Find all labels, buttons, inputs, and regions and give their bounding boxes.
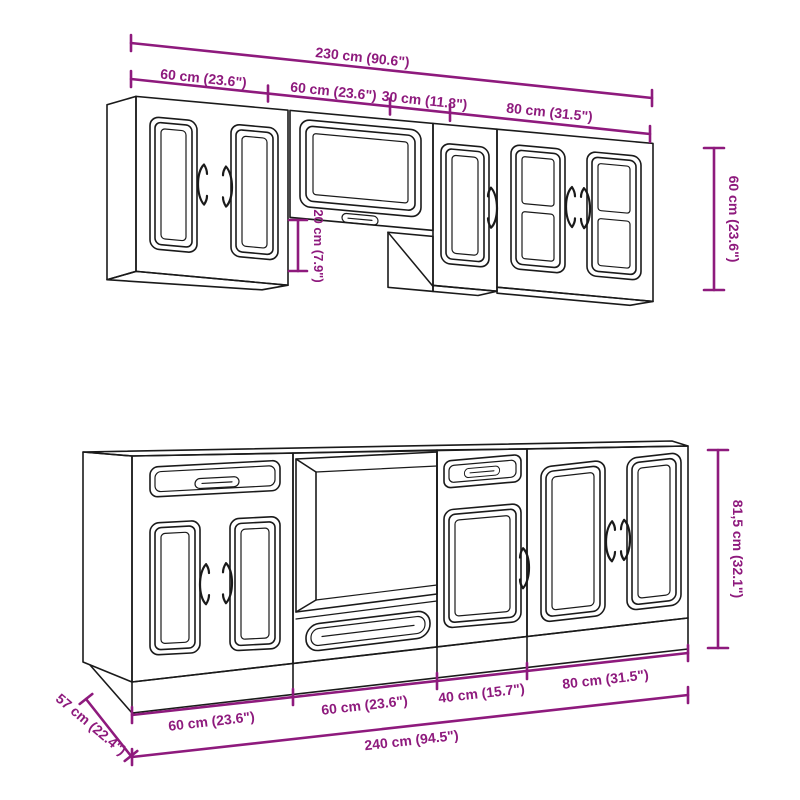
glass-door-frame [306, 126, 415, 211]
dim-label-lower-height: 81,5 cm (32.1") [730, 500, 746, 598]
dim-line-lower-height [708, 450, 728, 648]
cabinet-door-right [587, 151, 641, 280]
cabinet-door-right [231, 124, 278, 260]
door-panel [242, 136, 267, 248]
door-frame [449, 509, 516, 623]
cabinet-bottom-face [497, 287, 653, 307]
opening-inner-edge [296, 459, 316, 472]
wall-cabinet-80-double-door [497, 129, 653, 307]
door-panel-upper [522, 157, 554, 207]
door-outer [511, 145, 565, 274]
door-panel-lower [598, 218, 630, 268]
plinth-side-edge [90, 665, 132, 713]
dim-label-upper-segment-3: 30 cm (11.8") [381, 88, 468, 113]
wall-cabinet-60-double-door [107, 94, 288, 296]
door-outer [150, 117, 197, 253]
dim-line-underside-offset [289, 220, 307, 271]
door-panel-upper [598, 163, 630, 213]
door-panel [552, 472, 594, 610]
wall-cabinet-30-single-door [433, 123, 497, 297]
cabinet-front-face [437, 449, 527, 647]
dim-label-lower-segment-1: 60 cm (23.6") [167, 708, 255, 734]
door-frame [546, 466, 600, 617]
drawer-handle-icon [195, 476, 239, 488]
door-handle-icon [581, 188, 590, 229]
underside-box-edge [388, 232, 433, 286]
dim-label-underside-offset: 20 cm (7.9") [311, 209, 326, 282]
door-outer [587, 151, 641, 280]
base-cabinet-60-drawer-two-doors [132, 453, 293, 682]
cabinet-fronts [541, 451, 681, 622]
door-panel [452, 155, 478, 255]
cabinet-fronts [150, 460, 280, 655]
handle-bar [348, 218, 372, 220]
door-panel [241, 528, 269, 639]
cabinet-door-right [627, 452, 681, 610]
door-panel [455, 515, 510, 616]
base-cabinet-60-oven-open [293, 450, 437, 664]
cabinet-bottom-face [433, 285, 497, 297]
upper-dimensions: 230 cm (90.6") 60 cm (23.6") 60 cm (23.6… [131, 35, 742, 290]
opening-inner-shelf [316, 585, 437, 600]
door-outer [441, 143, 489, 267]
door-handle-icon [566, 187, 575, 228]
dim-label-lower-segment-3: 40 cm (15.7") [437, 680, 525, 706]
cabinet-door-right [230, 516, 280, 651]
door-outer [231, 124, 278, 260]
dim-label-upper-height: 60 cm (23.6") [726, 176, 742, 263]
oven-drawer [306, 610, 430, 652]
door-panel [638, 465, 670, 599]
glass-pane [313, 133, 408, 203]
cabinet-door-left [150, 117, 197, 253]
cabinet-door-left [541, 460, 605, 622]
door-panel [161, 129, 186, 241]
dim-label-lower-segment-4: 80 cm (31.5") [561, 666, 649, 692]
plinth-face [132, 618, 688, 713]
cabinet-side-face [83, 452, 132, 682]
dim-label-depth: 57 cm (22.4") [53, 690, 130, 758]
door-handle-icon [621, 519, 630, 560]
cabinet-side-face [107, 94, 136, 283]
drawer-handle-icon [322, 625, 414, 636]
diagram-canvas: 230 cm (90.6") 60 cm (23.6") 60 cm (23.6… [0, 0, 800, 800]
dim-label-lower-segment-2: 60 cm (23.6") [320, 692, 408, 718]
kitchen-cabinet-dimension-diagram: 230 cm (90.6") 60 cm (23.6") 60 cm (23.6… [0, 0, 800, 800]
door-panel-lower [522, 212, 554, 262]
door-handle-icon [198, 164, 207, 205]
cabinet-door-left [511, 145, 565, 274]
cabinet-underside-box [388, 232, 433, 291]
door-handle-icon [200, 564, 209, 604]
door-panel [161, 532, 189, 643]
door-outer [627, 452, 681, 610]
opening-inner-top [316, 466, 437, 472]
dim-label-total-width-top: 230 cm (90.6") [315, 44, 411, 70]
base-cabinet-40-drawer-door [437, 449, 529, 647]
countertop-face [83, 441, 688, 456]
base-cabinet-80-double-door [527, 446, 688, 637]
door-outer [150, 521, 200, 656]
cabinet-front-face [136, 96, 288, 285]
cabinet-front-face [527, 446, 688, 637]
drawer-handle-icon [464, 466, 499, 478]
dim-line-upper-height [704, 148, 724, 290]
door-outer [230, 516, 280, 651]
cabinet-door-left [150, 521, 200, 656]
door-outer [541, 460, 605, 622]
door-handle-icon [606, 521, 615, 562]
cabinet-fronts [444, 454, 529, 628]
wall-cabinet-row [107, 94, 653, 330]
